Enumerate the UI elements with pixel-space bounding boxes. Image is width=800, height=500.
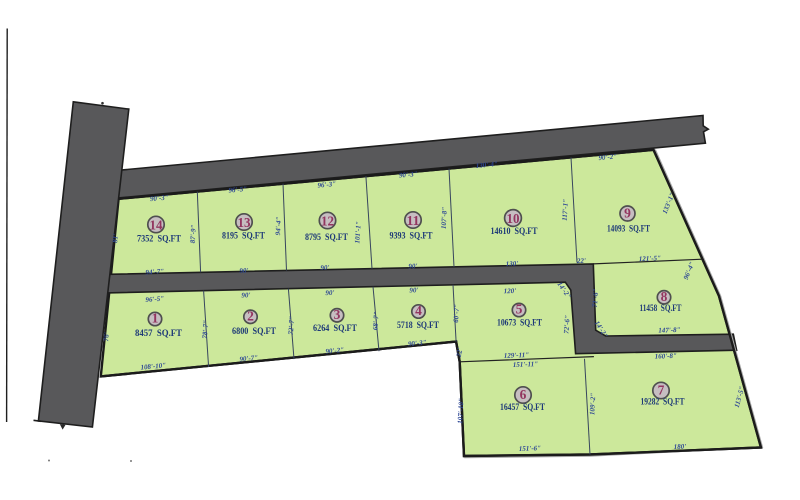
svg-text:151'-6": 151'-6" — [519, 444, 542, 453]
svg-text:96'-5": 96'-5" — [228, 185, 247, 195]
svg-text:90'-3": 90'-3" — [408, 338, 427, 348]
svg-text:4: 4 — [415, 303, 422, 318]
svg-text:14610 SQ.FT: 14610 SQ.FT — [491, 226, 538, 237]
svg-text:101'-1": 101'-1" — [353, 221, 363, 244]
svg-text:72'-7": 72'-7" — [287, 316, 296, 335]
svg-text:147'-8": 147'-8" — [658, 326, 681, 335]
svg-text:19282 SQ.FT: 19282 SQ.FT — [641, 396, 685, 407]
svg-text:94'-7": 94'-7" — [145, 267, 164, 276]
svg-text:8: 8 — [661, 289, 668, 304]
svg-text:151'-11": 151'-11" — [513, 360, 539, 369]
svg-text:9: 9 — [624, 205, 631, 220]
svg-text:96'-3": 96'-3" — [317, 180, 336, 190]
svg-text:5: 5 — [516, 302, 523, 317]
svg-text:14: 14 — [150, 218, 163, 233]
svg-text:90'-2": 90'-2" — [325, 346, 344, 356]
svg-text:60'-7": 60'-7" — [452, 304, 461, 323]
svg-text:6800 SQ.FT: 6800 SQ.FT — [232, 326, 276, 337]
svg-text:6: 6 — [520, 387, 527, 402]
svg-text:5718 SQ.FT: 5718 SQ.FT — [397, 320, 439, 331]
svg-text:22': 22' — [576, 257, 586, 265]
svg-text:129'-11": 129'-11" — [504, 351, 530, 360]
svg-text:90'-3": 90'-3" — [399, 170, 418, 180]
svg-text:7352 SQ.FT: 7352 SQ.FT — [137, 233, 181, 244]
svg-text:90': 90' — [325, 289, 334, 297]
svg-text:14093 SQ.FT: 14093 SQ.FT — [607, 223, 650, 234]
svg-text:107'-8": 107'-8" — [440, 207, 449, 230]
svg-text:8195 SQ.FT: 8195 SQ.FT — [222, 230, 265, 241]
svg-text:11458 SQ.FT: 11458 SQ.FT — [640, 303, 682, 314]
svg-text:87'-9": 87'-9" — [189, 224, 198, 243]
svg-text:22': 22' — [455, 347, 465, 358]
svg-text:117'-1": 117'-1" — [561, 199, 570, 221]
svg-text:130': 130' — [506, 260, 519, 268]
svg-text:11: 11 — [407, 213, 420, 228]
svg-text:8795 SQ.FT: 8795 SQ.FT — [305, 232, 348, 243]
svg-text:10673 SQ.FT: 10673 SQ.FT — [497, 318, 542, 329]
svg-text:90': 90' — [239, 267, 248, 275]
svg-text:90': 90' — [241, 291, 250, 299]
svg-text:90': 90' — [408, 262, 417, 270]
svg-text:90': 90' — [409, 286, 418, 294]
svg-text:72'-6": 72'-6" — [562, 315, 571, 334]
svg-text:109'-2": 109'-2" — [588, 393, 597, 416]
svg-text:90'-7": 90'-7" — [239, 354, 258, 364]
svg-text:1: 1 — [152, 311, 159, 326]
svg-text:78'-7": 78'-7" — [201, 320, 210, 339]
svg-text:71'-6": 71'-6" — [591, 288, 600, 307]
svg-text:160'-8": 160'-8" — [655, 352, 678, 361]
svg-text:107'-10": 107'-10" — [456, 398, 465, 424]
svg-text:90': 90' — [320, 264, 329, 272]
svg-text:10: 10 — [507, 211, 520, 226]
svg-text:13: 13 — [238, 215, 251, 230]
svg-text:3: 3 — [334, 307, 341, 322]
svg-text:16457 SQ.FT: 16457 SQ.FT — [500, 402, 545, 413]
svg-text:9393 SQ.FT: 9393 SQ.FT — [390, 230, 433, 241]
svg-text:6264 SQ.FT: 6264 SQ.FT — [313, 323, 357, 334]
svg-text:180': 180' — [674, 443, 687, 451]
svg-text:81': 81' — [111, 233, 120, 243]
svg-text:68'-7": 68'-7" — [371, 311, 380, 330]
svg-text:90'-3": 90'-3" — [150, 193, 169, 203]
svg-text:120': 120' — [504, 287, 517, 295]
svg-text:94'-4": 94'-4" — [274, 216, 283, 235]
svg-text:121'-5": 121'-5" — [639, 254, 662, 263]
svg-text:2: 2 — [247, 308, 254, 323]
svg-text:90'-2": 90'-2" — [598, 152, 617, 162]
svg-text:8457 SQ.FT: 8457 SQ.FT — [135, 328, 182, 339]
svg-text:12: 12 — [321, 214, 334, 229]
svg-text:76': 76' — [102, 332, 111, 342]
svg-text:96'-5": 96'-5" — [145, 295, 164, 304]
